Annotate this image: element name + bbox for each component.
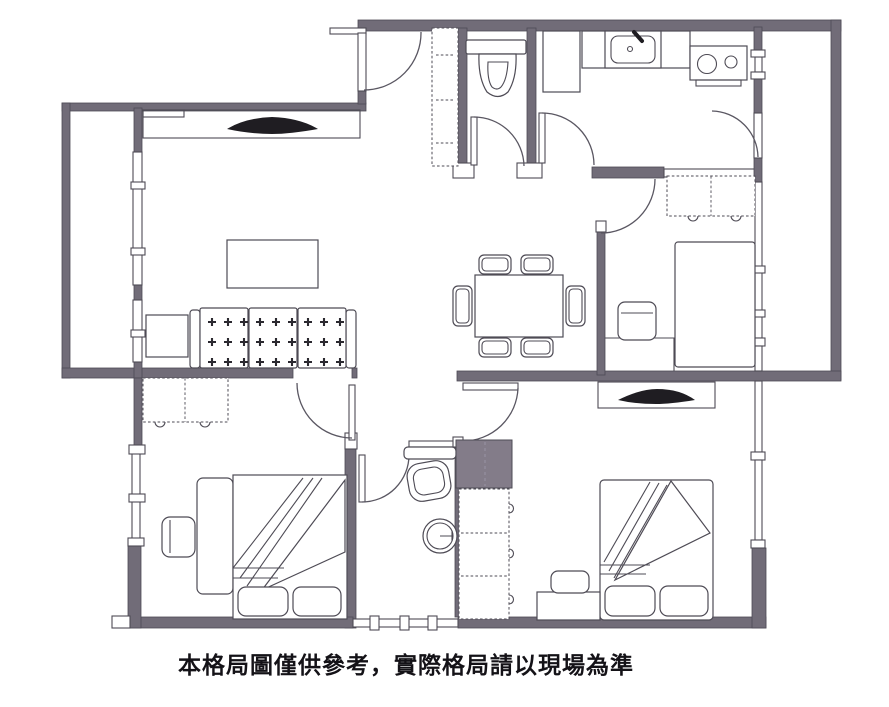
wall-left xyxy=(62,103,70,378)
bed1-pillow xyxy=(293,587,341,616)
bedroom3-door-arc xyxy=(601,179,655,233)
bath1-door-leaf xyxy=(471,117,477,165)
jamb-bedroom3 xyxy=(596,221,606,232)
wall-middle-left-end xyxy=(352,368,357,378)
wardrobe-bedroom1 xyxy=(143,378,228,422)
floor-plan-page: 本格局圖僅供參考，實際格局請以現場為準 xyxy=(0,0,889,707)
window-connector xyxy=(751,452,765,460)
wall-bath2-top xyxy=(409,441,458,447)
window-connector xyxy=(129,445,145,454)
entry-door-leaf xyxy=(358,33,366,91)
window-connector xyxy=(131,182,145,189)
disclaimer-caption: 本格局圖僅供參考，實際格局請以現場為準 xyxy=(0,646,812,680)
window-connector xyxy=(400,616,409,630)
toilet2-tank xyxy=(404,447,456,459)
window-connector xyxy=(751,540,765,548)
window-connector xyxy=(370,616,379,630)
bedroom2-door-arc xyxy=(463,388,518,441)
kitchen-door-arc xyxy=(542,113,594,165)
stove-front xyxy=(696,80,741,86)
bathroom1 xyxy=(466,40,526,97)
bedroom3 xyxy=(605,176,755,371)
tall-cabinet xyxy=(459,489,509,619)
sofa xyxy=(190,308,356,368)
jamb-bath1-right xyxy=(517,163,542,178)
fridge-cabinet xyxy=(543,31,580,92)
kitchen-balcony-door-arc xyxy=(712,111,758,157)
bed1-pillow xyxy=(238,587,288,616)
bed-bedroom3 xyxy=(675,242,755,367)
window-connector xyxy=(131,330,145,337)
dark-cabinet xyxy=(456,440,512,488)
wall-top xyxy=(358,20,841,31)
wardrobe-handles xyxy=(155,422,210,427)
entry-door-arc xyxy=(364,32,421,90)
nightstand-bedroom3 xyxy=(618,302,656,340)
shoe-cabinet xyxy=(432,28,458,166)
coffee-table xyxy=(227,240,318,288)
bedroom2 xyxy=(537,382,715,620)
window-bedroom3-right-b xyxy=(755,346,762,371)
bathroom2 xyxy=(404,447,457,553)
window-kitchen-right xyxy=(755,57,762,72)
bedroom3-ledge xyxy=(605,338,674,371)
kitchen xyxy=(543,31,747,92)
window-connector xyxy=(751,72,765,79)
wall-entry-bottom xyxy=(358,90,366,104)
wall-bedroom3-top-stub xyxy=(592,167,664,178)
bed2-pillow xyxy=(660,586,708,616)
bedroom1-door-arc xyxy=(297,383,352,438)
bath2-door-leaf xyxy=(359,455,365,502)
wall-bedroom2-right-lower xyxy=(752,548,766,628)
window-bedroom2-right xyxy=(755,381,762,452)
bedroom1-door-leaf xyxy=(349,385,355,440)
wardrobe-handles xyxy=(688,216,741,221)
tv-icon xyxy=(227,117,318,134)
dining-area xyxy=(453,255,585,357)
toilet1-bowl xyxy=(479,54,516,97)
bed1-headboard xyxy=(197,478,233,594)
wall-rwin-a xyxy=(754,27,762,50)
window-connector xyxy=(751,50,765,57)
window-connector xyxy=(128,538,144,546)
wall-balcony-left-a xyxy=(134,108,142,152)
window-connector xyxy=(428,616,437,630)
bath2-door-arc xyxy=(362,455,409,502)
toilet2-bowl xyxy=(405,459,453,504)
wall-rwin-b xyxy=(754,79,762,113)
window-balcony-left-1 xyxy=(133,152,142,285)
wall-balcony-left-b xyxy=(134,285,142,300)
jamb-bottom-left xyxy=(112,616,130,628)
bed2-pillow xyxy=(605,586,655,616)
window-connector xyxy=(131,248,145,255)
dining-table xyxy=(475,275,563,337)
floor-plan xyxy=(0,0,889,707)
tv-icon-bedroom2 xyxy=(618,389,695,404)
living-room xyxy=(143,110,360,368)
wall-middle-left xyxy=(62,368,293,378)
sofa-arm-right xyxy=(346,310,356,368)
wall-middle-right xyxy=(457,371,841,381)
bench-cushion xyxy=(551,571,589,593)
bedroom1 xyxy=(143,378,347,619)
stove xyxy=(690,46,747,80)
kitchen-door-leaf xyxy=(539,113,545,163)
wall-rwin-c xyxy=(754,158,762,182)
window-bedroom2-right-b xyxy=(755,460,762,540)
sofa-arm-left xyxy=(190,310,200,368)
wall-bedroom1-left-upper xyxy=(134,378,142,448)
toilet1-tank xyxy=(466,40,526,54)
utility-cabinets xyxy=(456,440,514,619)
toilet2-bowl-group xyxy=(405,459,453,504)
side-table xyxy=(146,315,188,357)
wall-balcony-left-c xyxy=(134,362,142,378)
bench xyxy=(537,592,600,620)
wall-bedroom3-left xyxy=(597,231,605,375)
wall-bath1-right xyxy=(527,28,536,167)
bath1-door-arc xyxy=(474,117,524,166)
nightstand-bedroom1 xyxy=(162,517,195,557)
window-connector xyxy=(129,494,145,502)
bedroom2-door-leaf xyxy=(463,383,518,390)
cabinet-hinges xyxy=(509,504,514,604)
wall-right xyxy=(831,20,841,380)
sofa-tufting xyxy=(200,308,346,368)
